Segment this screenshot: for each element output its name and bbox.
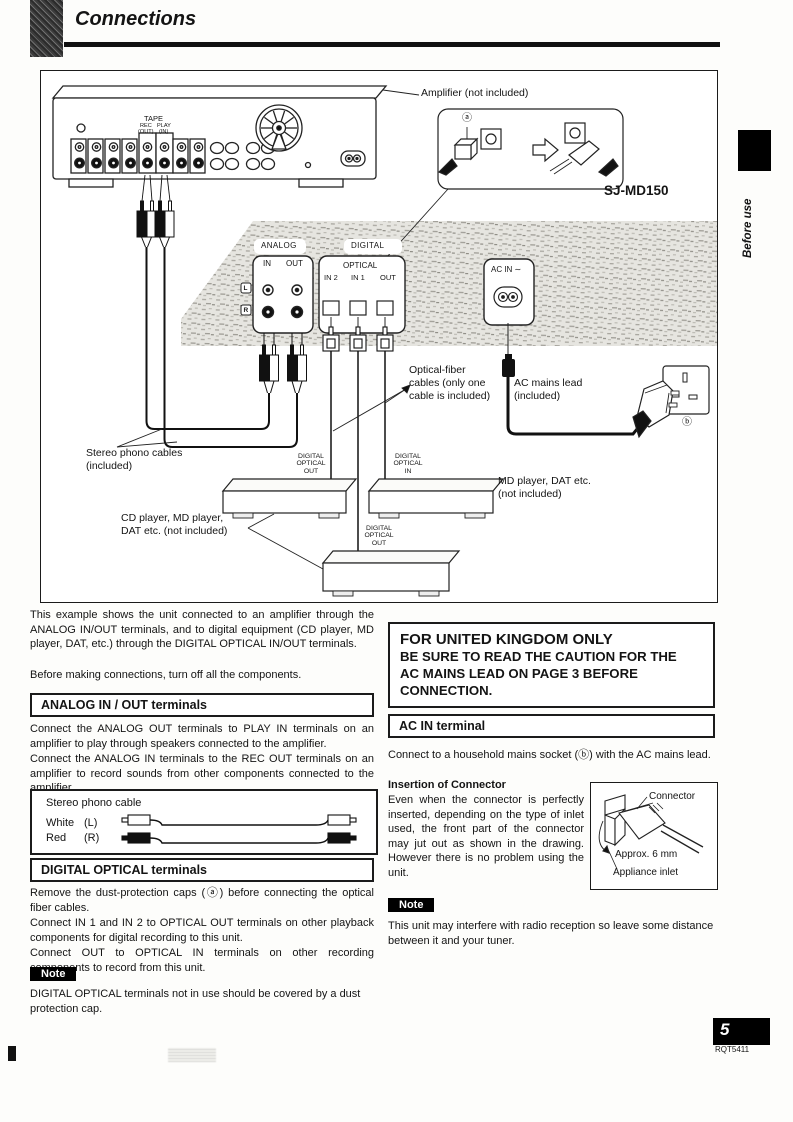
amp-rec-sub: (OUT) — [138, 129, 154, 135]
header-texture-block — [30, 0, 63, 57]
device-recorder — [323, 551, 459, 596]
amplifier-label: Amplifier (not included) — [421, 87, 528, 100]
section-tab-block — [738, 130, 771, 171]
analog-section-header: ANALOG IN / OUT terminals — [30, 693, 374, 717]
page-title: Connections — [75, 8, 196, 30]
dig-opt-in-label: DIGITAL OPTICAL IN — [378, 453, 438, 475]
side-tab-label: Before use — [742, 178, 754, 258]
ac-in-text: Connect to a household mains socket (ⓑ) … — [388, 748, 718, 763]
socket-marker-b: ⓑ — [682, 417, 692, 428]
note-badge-right: Note — [388, 898, 434, 912]
intro-paragraph-2: Before making connections, turn off all … — [30, 668, 374, 683]
md-player-label: MD player, DAT etc. (not included) — [498, 475, 591, 501]
analog-paragraph-1: Connect the ANALOG OUT terminals to PLAY… — [30, 722, 374, 751]
intro-paragraph: This example shows the unit connected to… — [30, 608, 374, 652]
ac-in-section-header: AC IN terminal — [388, 714, 715, 738]
ac-in-label: AC IN ∼ — [491, 266, 521, 275]
dig-opt-out-label-left: DIGITAL OPTICAL OUT — [281, 453, 341, 475]
digital-paragraph-1: Remove the dust-protection caps (ⓐ) befo… — [30, 886, 374, 915]
insertion-title: Insertion of Connector — [388, 778, 588, 793]
phono-white-channel: (L) — [84, 817, 97, 829]
print-smudge — [168, 1048, 216, 1062]
analog-panel — [253, 256, 313, 333]
uk-warning-box: FOR UNITED KINGDOM ONLY BE SURE TO READ … — [388, 622, 715, 708]
analog-r-marker: R — [244, 307, 249, 314]
phono-red-channel: (R) — [84, 832, 99, 844]
connector-figure: Connector Approx. 6 mm Appliance inlet — [590, 782, 718, 890]
dig-opt-out-label-bottom: DIGITAL OPTICAL OUT — [349, 525, 409, 547]
optical-out-label: OUT — [380, 274, 396, 282]
amp-ac-inlet-icon — [341, 151, 365, 166]
manual-page: Connections Before use — [0, 0, 793, 1122]
cd-player-label: CD player, MD player, DAT etc. (not incl… — [121, 512, 227, 538]
note-text-right: This unit may interfere with radio recep… — [388, 919, 718, 948]
doc-code: RQT5411 — [715, 1046, 749, 1055]
fan-icon — [256, 105, 302, 151]
phono-cable-drawing — [116, 811, 366, 851]
digital-paragraph-2: Connect IN 1 and IN 2 to OPTICAL OUT ter… — [30, 916, 374, 945]
device-md-player — [369, 479, 503, 518]
fig-approx-label: Approx. 6 mm — [615, 849, 677, 860]
digital-title: DIGITAL — [351, 242, 384, 251]
phono-red-label: Red — [46, 832, 66, 844]
fig-inlet-label: Appliance inlet — [613, 867, 678, 878]
optical-in2-label: IN 2 — [324, 274, 338, 282]
optical-fiber-label: Optical-fiber cables (only one cable is … — [409, 364, 490, 402]
amp-tape-label: TAPE — [144, 115, 163, 123]
cap-marker-a: ⓐ — [462, 113, 472, 124]
optical-title: OPTICAL — [343, 262, 377, 271]
analog-title: ANALOG — [261, 242, 297, 251]
uk-warning-title: FOR UNITED KINGDOM ONLY — [400, 631, 703, 648]
amp-play-sub: (IN) — [159, 129, 168, 135]
stereo-phono-label: Stereo phono cables (included) — [86, 447, 182, 473]
amp-screw — [306, 163, 311, 168]
page-number-block: 5 — [713, 1018, 770, 1045]
ac-mains-label: AC mains lead (included) — [514, 377, 582, 403]
analog-l-marker: L — [244, 285, 248, 292]
device-cd-player — [223, 479, 356, 518]
phono-cable-figure: Stereo phono cable White (L) Red (R) — [30, 789, 378, 855]
amplifier-label-pointer — [383, 90, 419, 95]
amplifier-drawing — [53, 86, 386, 187]
insertion-text: Even when the connector is perfectly ins… — [388, 793, 584, 881]
page-number: 5 — [713, 1018, 770, 1040]
digital-paragraph-3: Connect OUT to OPTICAL IN terminals on o… — [30, 946, 374, 975]
analog-in-label: IN — [263, 260, 271, 269]
fig-connector-label: Connector — [649, 791, 695, 802]
digital-section-header: DIGITAL OPTICAL terminals — [30, 858, 374, 882]
print-registration-mark — [8, 1046, 16, 1061]
note-badge-left: Note — [30, 967, 76, 981]
optical-in1-label: IN 1 — [351, 274, 365, 282]
analog-out-label: OUT — [286, 260, 303, 269]
phono-figure-title: Stereo phono cable — [46, 797, 141, 809]
uk-warning-body: BE SURE TO READ THE CAUTION FOR THE AC M… — [400, 648, 703, 699]
model-label: SJ-MD150 — [604, 184, 669, 199]
note-text-left: DIGITAL OPTICAL terminals not in use sho… — [30, 987, 374, 1016]
phono-white-label: White — [46, 817, 74, 829]
connection-diagram: Amplifier (not included) ⓐ SJ-MD150 TAPE… — [40, 70, 718, 603]
header-rule — [64, 42, 720, 47]
